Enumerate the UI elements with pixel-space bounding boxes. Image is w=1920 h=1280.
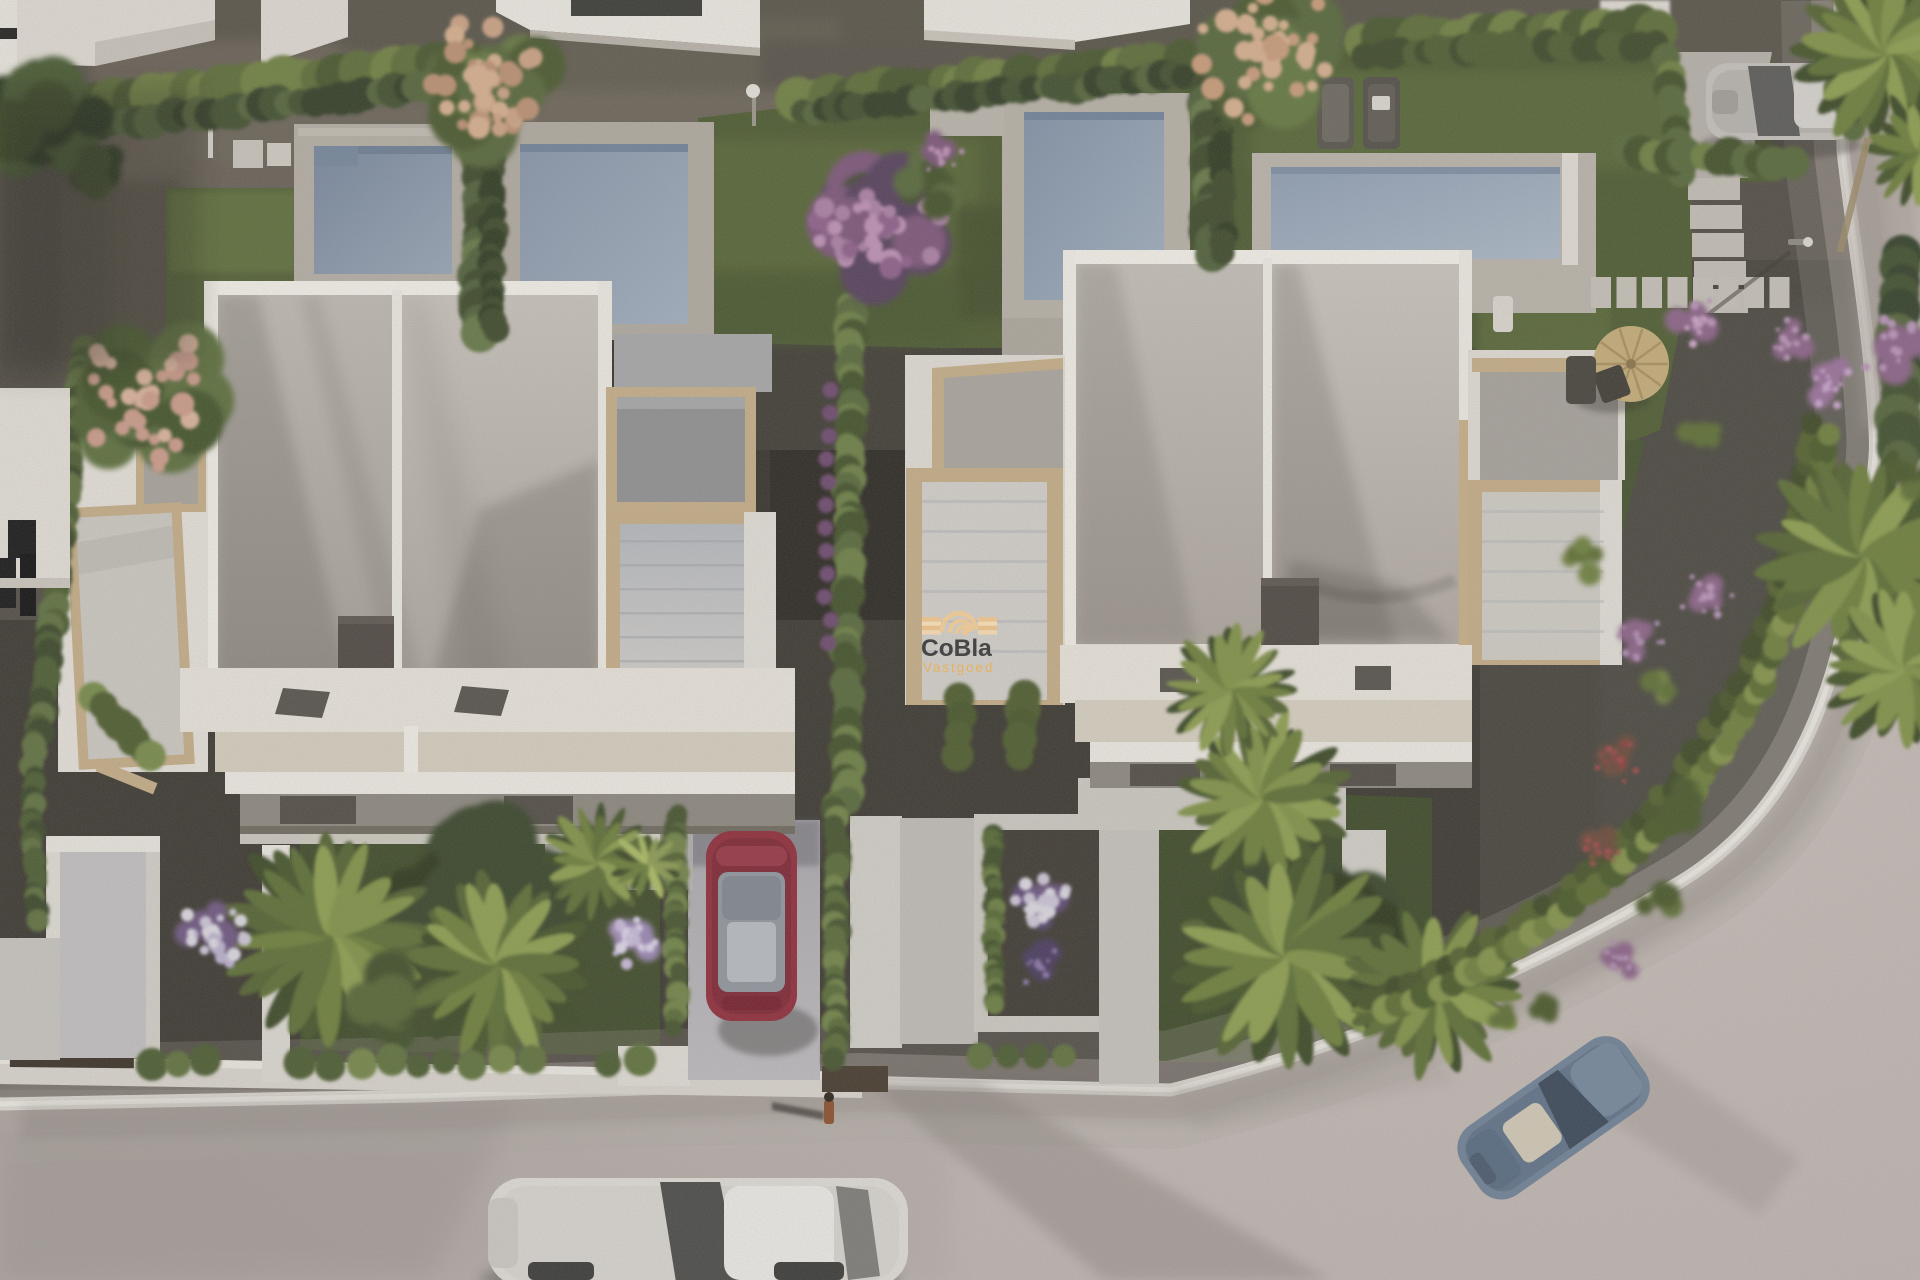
svg-text:CoBla: CoBla [921,635,992,662]
svg-text:Vastgoed: Vastgoed [923,660,994,675]
